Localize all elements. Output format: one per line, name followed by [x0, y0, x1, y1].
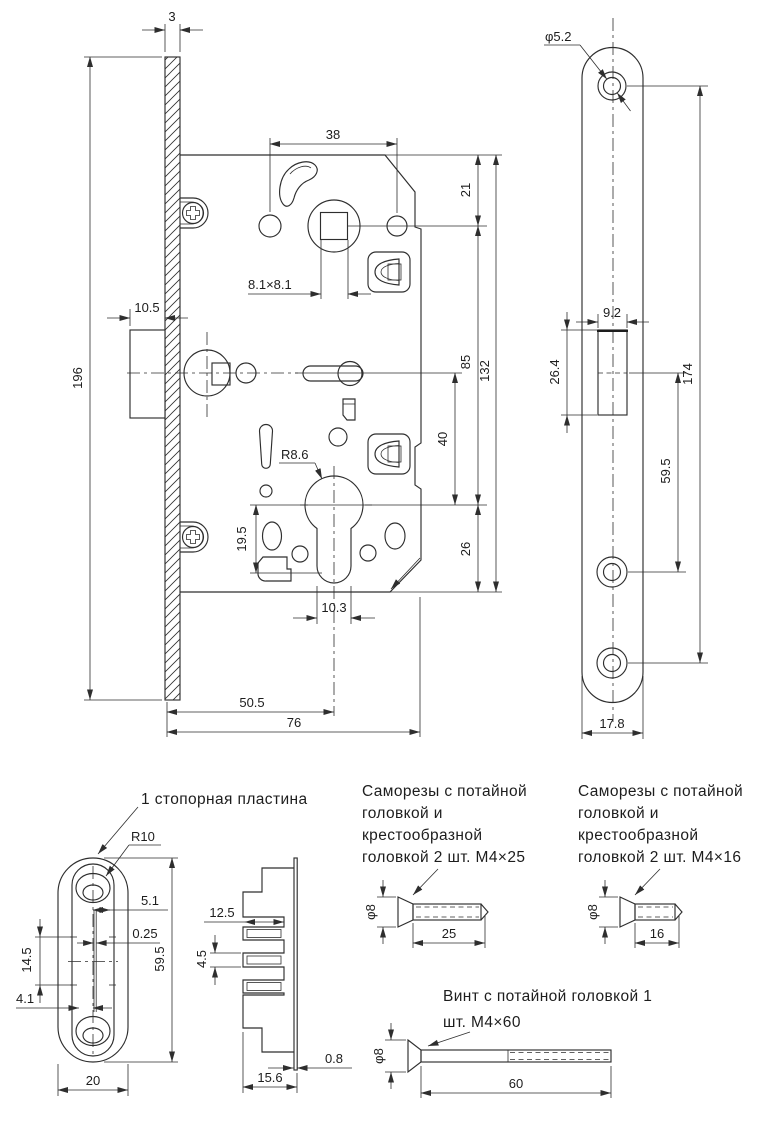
dim-text: 8.1×8.1	[248, 277, 292, 292]
dim-text: 196	[70, 367, 85, 389]
dim-text: 60	[509, 1076, 523, 1091]
label-text: 1 стопорная пластина	[141, 791, 307, 808]
bottom-screw	[180, 522, 208, 552]
dim-cylinder-radius: R8.6	[279, 447, 322, 479]
dim-total-depth: 15.6	[243, 1032, 297, 1093]
spring-slot	[260, 425, 273, 469]
dim-text: 174	[680, 363, 695, 385]
screw-shaft	[421, 1050, 611, 1062]
dim-back-thickness: 0.8	[268, 1051, 352, 1068]
label-line3: крестообразной	[578, 827, 698, 844]
leader	[428, 1032, 470, 1046]
oval-slot-left	[263, 522, 282, 550]
dim-text: 50.5	[239, 695, 264, 710]
top-screw	[180, 198, 208, 228]
faceplate-edge-hatched	[165, 57, 180, 700]
bottom-screw-hole-outer	[597, 648, 627, 678]
leader	[413, 869, 438, 895]
dim-text: 19.5	[234, 526, 249, 551]
leader	[635, 869, 660, 895]
dim-text: φ5.2	[545, 29, 572, 44]
stop-plate-front-view: 1 стопорная пластина R10 5.1 0.25 14.5	[16, 791, 307, 1096]
slide-slot	[303, 366, 363, 381]
dim-stop-height: 59.5	[104, 858, 178, 1062]
dim-opening-width: 9.2	[576, 305, 649, 328]
dim-text: 20	[86, 1073, 100, 1088]
back-plate	[294, 858, 297, 1070]
spindle-square-hole	[321, 213, 348, 240]
screw-tip	[481, 904, 488, 920]
fin-2-inner	[247, 956, 281, 964]
lock-drawing-svg: 3 196 10.5 38 8.1×8.1 R8.6	[0, 0, 777, 1132]
screw-m4x60: Винт с потайной головкой 1 шт. M4×60 φ8 …	[371, 988, 652, 1098]
label-line4: головкой 2 шт. M4×25	[362, 849, 525, 866]
dim-text: 16	[650, 926, 664, 941]
dim-text: 59.5	[658, 458, 673, 483]
latch-bolt	[130, 330, 165, 418]
technical-drawing-page: 3 196 10.5 38 8.1×8.1 R8.6	[0, 0, 777, 1132]
magnet-component-top	[368, 252, 410, 292]
dim-text: 26.4	[547, 359, 562, 384]
screw-head	[408, 1040, 421, 1072]
top-screw-hole-inner	[604, 78, 621, 95]
chamfer-leader	[391, 558, 420, 589]
label-line1: Саморезы с потайной	[578, 783, 743, 800]
screw-head	[398, 897, 413, 927]
bottom-hole-right	[360, 545, 376, 561]
stop-lug	[343, 399, 355, 420]
dim-text: 15.6	[257, 1070, 282, 1085]
dim-text: 0.8	[325, 1051, 343, 1066]
bottom-hole-left	[292, 546, 308, 562]
dim-right-chain: 21 85 26 132 40	[435, 155, 496, 592]
mid-screw-hole-inner	[604, 564, 621, 581]
dim-text: 38	[326, 127, 340, 142]
lock-body-outline	[180, 155, 421, 592]
dim-hole-span: 174	[627, 86, 708, 663]
lock-body-view: 3 196 10.5 38 8.1×8.1 R8.6	[70, 9, 502, 737]
dim-fin-pitch: 4.5	[194, 935, 241, 985]
dim-text: R10	[131, 829, 155, 844]
screw-shaft	[413, 904, 481, 920]
dim-text: 10.5	[134, 300, 159, 315]
small-hole	[329, 428, 347, 446]
dim-plate-thickness: 3	[142, 9, 203, 52]
dim-head-dia: φ8	[371, 1023, 406, 1089]
phillips-cross-icon	[187, 207, 200, 220]
dim-length: 16	[635, 916, 679, 948]
dim-opening-height: 26.4	[547, 312, 597, 433]
label-line1: Саморезы с потайной	[362, 783, 527, 800]
dim-spindle-square: 8.1×8.1	[248, 240, 371, 299]
dim-radius: R10	[106, 829, 161, 876]
dim-faceplate-width: 17.8	[582, 676, 643, 739]
fin-3-inner	[247, 983, 281, 991]
label-line3: крестообразной	[362, 827, 482, 844]
faceplate-outline	[582, 47, 643, 702]
label-line1: Винт с потайной головкой 1	[443, 988, 652, 1005]
top-screw-hole-outer	[598, 72, 626, 100]
dim-lower-span: 59.5	[628, 373, 686, 572]
fin-1-inner	[247, 930, 281, 938]
stop-plate-label: 1 стопорная пластина	[98, 791, 307, 854]
dim-text-40: 40	[435, 432, 450, 446]
dim-text: 3	[168, 9, 175, 24]
dim-text: 4.5	[194, 950, 209, 968]
dim-text: 76	[287, 715, 301, 730]
dim-length: 60	[421, 1066, 611, 1098]
dim-length: 25	[413, 916, 485, 948]
screw-tip	[675, 904, 682, 920]
latch-opening	[598, 330, 627, 415]
spring-inner-line	[290, 166, 311, 174]
dim-text-21: 21	[458, 183, 473, 197]
dim-text: 14.5	[19, 947, 34, 972]
dim-gap: 0.25	[77, 926, 160, 943]
dim-text: 4.1	[16, 991, 34, 1006]
corner-cutout	[258, 557, 291, 581]
dim-stop-width: 20	[58, 1064, 128, 1096]
dim-text: 10.3	[321, 600, 346, 615]
dim-text: R8.6	[281, 447, 308, 462]
dim-text: φ8	[371, 1048, 386, 1064]
dim-text: 25	[442, 926, 456, 941]
dim-keyway-height: 19.5	[234, 505, 322, 573]
dim-edge-width: 4.1	[16, 991, 112, 1008]
dim-text: 12.5	[209, 905, 234, 920]
spring-element	[280, 162, 318, 206]
dim-center-offset: 5.1	[93, 893, 168, 910]
magnet-component-bottom	[368, 434, 410, 474]
dim-text: 9.2	[603, 305, 621, 320]
latch-follower-notch	[212, 363, 230, 385]
phillips-cross-icon	[187, 531, 200, 544]
label-line2: головкой и	[578, 805, 659, 822]
screw-m4x16: Саморезы с потайной головкой и крестообр…	[578, 783, 743, 948]
left-mount-hole	[259, 215, 281, 237]
screw-shaft	[635, 904, 675, 920]
dim-text: 0.25	[132, 926, 157, 941]
dim-head-dia: φ8	[363, 880, 396, 944]
dim-text-85: 85	[458, 355, 473, 369]
label-line4: головкой 2 шт. M4×16	[578, 849, 741, 866]
mid-screw-hole-outer	[597, 557, 627, 587]
dim-text: φ8	[363, 904, 378, 920]
label-line2: головкой и	[362, 805, 443, 822]
dim-head-dia: φ8	[585, 880, 618, 944]
stop-plate-side-view: 12.5 4.5 15.6 0.8	[194, 858, 352, 1093]
faceplate-view: φ5.2 9.2 26.4 59.5 174	[544, 18, 708, 739]
bottom-screw-hole-inner	[604, 655, 621, 672]
dim-text: φ8	[585, 904, 600, 920]
dim-backset: 50.5	[167, 695, 334, 737]
dim-text: 59.5	[152, 946, 167, 971]
label-line2: шт. M4×60	[443, 1014, 521, 1031]
dim-text: 17.8	[599, 716, 624, 731]
oval-slot-right	[385, 523, 405, 549]
dim-side-depth: 12.5	[204, 905, 284, 922]
screw-head	[620, 897, 635, 927]
slide-slot-circle	[338, 362, 362, 386]
dim-text: 5.1	[141, 893, 159, 908]
side-profile	[243, 868, 294, 1052]
dim-text-26: 26	[458, 542, 473, 556]
dim-text-132: 132	[477, 360, 492, 382]
stop-plate-outline	[58, 858, 128, 1062]
screw-m4x25: Саморезы с потайной головкой и крестообр…	[362, 783, 527, 948]
spring-slot-hole	[260, 485, 272, 497]
